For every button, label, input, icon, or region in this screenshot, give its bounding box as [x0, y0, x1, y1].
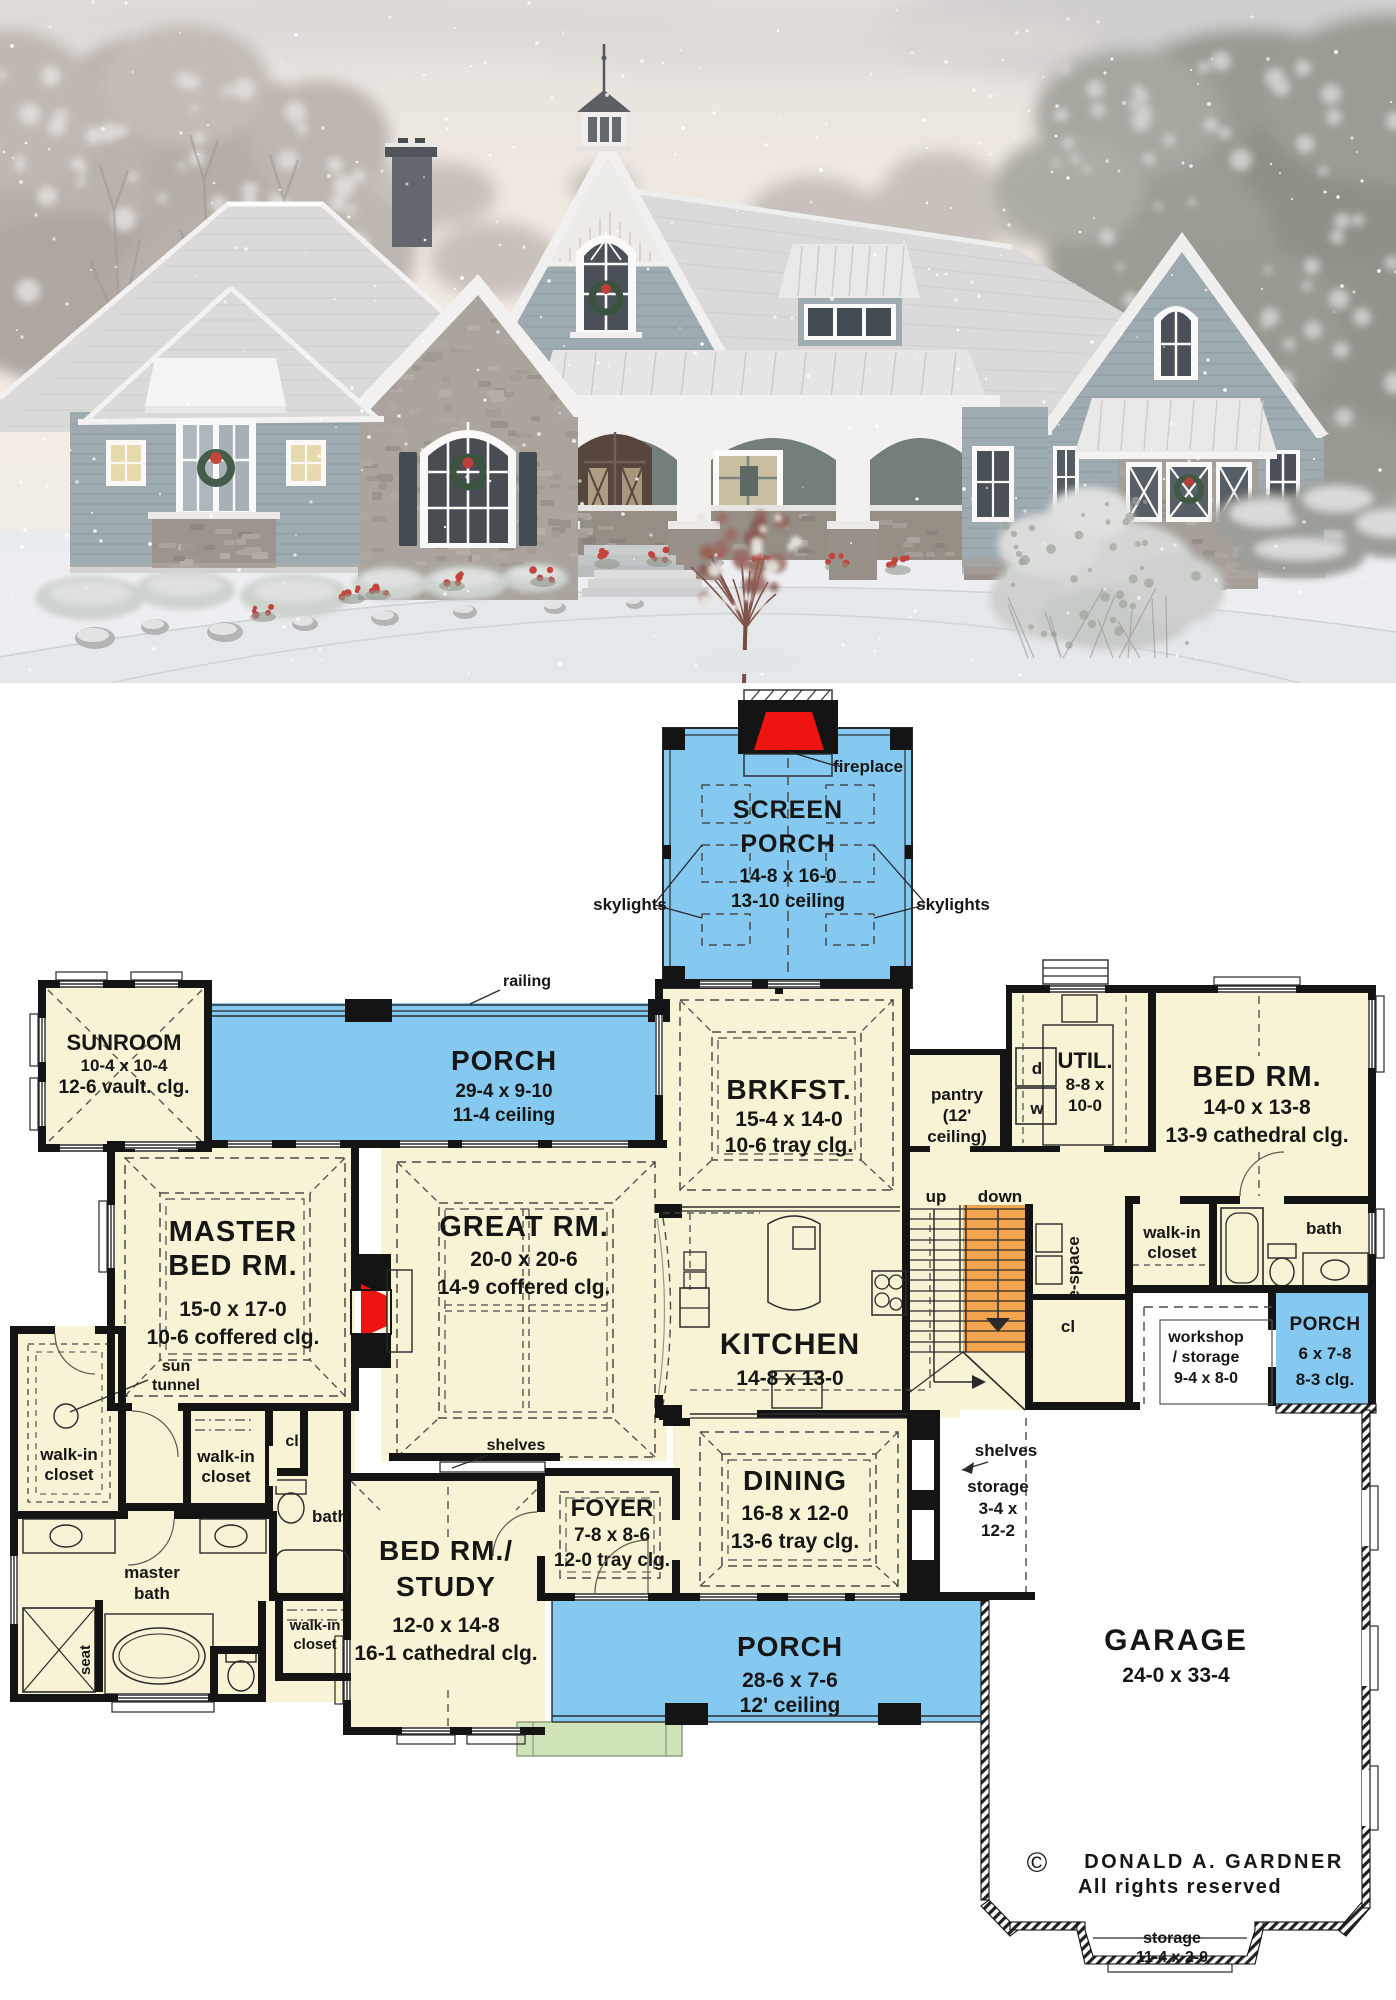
svg-text:skylights: skylights: [593, 895, 667, 914]
svg-text:BED RM.: BED RM.: [168, 1250, 297, 1282]
svg-text:workshop: workshop: [1167, 1329, 1244, 1346]
svg-text:/ storage: / storage: [1173, 1349, 1240, 1366]
svg-text:ceiling): ceiling): [927, 1127, 987, 1146]
svg-text:w: w: [1029, 1099, 1044, 1118]
svg-text:12-6 vault. clg.: 12-6 vault. clg.: [59, 1077, 190, 1098]
svg-text:13-6 tray clg.: 13-6 tray clg.: [731, 1530, 859, 1553]
svg-text:master: master: [124, 1563, 180, 1582]
svg-text:20-0 x 20-6: 20-0 x 20-6: [470, 1248, 577, 1271]
svg-text:16-8 x 12-0: 16-8 x 12-0: [741, 1502, 848, 1525]
svg-text:3-4 x: 3-4 x: [979, 1499, 1018, 1518]
svg-text:10-6 coffered clg.: 10-6 coffered clg.: [147, 1326, 320, 1349]
svg-text:skylights: skylights: [916, 895, 990, 914]
svg-text:14-8 x 13-0: 14-8 x 13-0: [736, 1367, 843, 1390]
svg-text:STUDY: STUDY: [396, 1571, 496, 1602]
svg-text:bath: bath: [1306, 1219, 1342, 1238]
svg-text:DONALD A. GARDNER: DONALD A. GARDNER: [1084, 1851, 1344, 1873]
svg-text:UTIL.: UTIL.: [1058, 1048, 1113, 1073]
svg-text:walk-in: walk-in: [39, 1445, 98, 1464]
svg-text:7-8 x 8-6: 7-8 x 8-6: [574, 1525, 650, 1546]
svg-text:MASTER: MASTER: [169, 1216, 297, 1248]
svg-text:12' ceiling: 12' ceiling: [740, 1694, 841, 1717]
svg-text:sun: sun: [162, 1358, 190, 1375]
svg-text:seat: seat: [77, 1645, 94, 1675]
svg-text:14-9 coffered clg.: 14-9 coffered clg.: [438, 1276, 611, 1299]
svg-text:All rights reserved: All rights reserved: [1078, 1876, 1282, 1898]
svg-text:PORCH: PORCH: [1289, 1314, 1360, 1335]
svg-text:12-2: 12-2: [981, 1521, 1015, 1540]
svg-text:9-4 x 8-0: 9-4 x 8-0: [1174, 1370, 1238, 1387]
svg-text:(12': (12': [943, 1106, 972, 1125]
svg-text:walk-in: walk-in: [1142, 1223, 1201, 1242]
svg-text:tunnel: tunnel: [152, 1377, 200, 1394]
svg-text:down: down: [978, 1187, 1022, 1206]
svg-text:storage: storage: [967, 1477, 1028, 1496]
svg-text:14-8 x 16-0: 14-8 x 16-0: [739, 866, 836, 887]
svg-text:11-4 x 2-0: 11-4 x 2-0: [1136, 1949, 1208, 1966]
svg-text:©: ©: [1027, 1847, 1048, 1878]
svg-text:29-4 x 9-10: 29-4 x 9-10: [455, 1081, 552, 1102]
svg-text:BRKFST.: BRKFST.: [726, 1074, 851, 1105]
svg-text:DINING: DINING: [743, 1465, 847, 1496]
svg-text:14-0 x 13-8: 14-0 x 13-8: [1203, 1096, 1311, 1119]
svg-text:8-8 x: 8-8 x: [1066, 1075, 1105, 1094]
svg-text:storage: storage: [1143, 1930, 1201, 1947]
svg-text:FOYER: FOYER: [571, 1495, 654, 1522]
svg-text:28-6 x 7-6: 28-6 x 7-6: [742, 1669, 838, 1692]
svg-text:10-6 tray clg.: 10-6 tray clg.: [725, 1134, 853, 1157]
svg-text:e-space: e-space: [1064, 1236, 1083, 1299]
svg-text:bath: bath: [312, 1507, 348, 1526]
svg-text:SCREEN: SCREEN: [733, 796, 843, 824]
svg-text:KITCHEN: KITCHEN: [720, 1328, 860, 1361]
svg-text:closet: closet: [201, 1467, 250, 1486]
svg-text:cl: cl: [285, 1433, 298, 1450]
svg-text:closet: closet: [44, 1465, 93, 1484]
svg-text:railing: railing: [503, 973, 551, 990]
svg-text:bath: bath: [134, 1584, 170, 1603]
svg-text:cl: cl: [1061, 1317, 1075, 1336]
svg-text:pantry: pantry: [931, 1085, 984, 1104]
svg-text:13-9 cathedral clg.: 13-9 cathedral clg.: [1165, 1124, 1348, 1147]
svg-text:GREAT RM.: GREAT RM.: [439, 1211, 609, 1243]
svg-text:12-0 x 14-8: 12-0 x 14-8: [392, 1614, 500, 1637]
svg-text:PORCH: PORCH: [740, 830, 835, 858]
svg-text:11-4 ceiling: 11-4 ceiling: [453, 1105, 555, 1126]
svg-text:13-10 ceiling: 13-10 ceiling: [731, 891, 845, 912]
svg-text:16-1 cathedral clg.: 16-1 cathedral clg.: [354, 1642, 537, 1665]
svg-text:closet: closet: [293, 1636, 336, 1653]
svg-text:closet: closet: [1147, 1243, 1196, 1262]
svg-text:walk-in: walk-in: [196, 1447, 255, 1466]
svg-text:10-0: 10-0: [1068, 1096, 1102, 1115]
svg-text:8-3 clg.: 8-3 clg.: [1296, 1370, 1355, 1389]
svg-text:GARAGE: GARAGE: [1104, 1624, 1248, 1657]
svg-text:PORCH: PORCH: [737, 1631, 843, 1662]
svg-text:24-0 x 33-4: 24-0 x 33-4: [1122, 1664, 1230, 1687]
svg-text:15-0 x 17-0: 15-0 x 17-0: [179, 1298, 286, 1321]
svg-text:15-4 x 14-0: 15-4 x 14-0: [735, 1108, 842, 1131]
svg-text:shelves: shelves: [487, 1437, 546, 1454]
svg-text:d: d: [1032, 1059, 1042, 1078]
svg-text:12-0 tray clg.: 12-0 tray clg.: [554, 1550, 670, 1571]
svg-text:BED RM.: BED RM.: [1192, 1061, 1321, 1093]
svg-text:fireplace: fireplace: [833, 757, 903, 776]
svg-text:10-4 x 10-4: 10-4 x 10-4: [81, 1056, 168, 1075]
svg-text:up: up: [926, 1187, 947, 1206]
svg-text:6 x 7-8: 6 x 7-8: [1299, 1344, 1352, 1363]
svg-text:SUNROOM: SUNROOM: [67, 1030, 182, 1055]
svg-text:PORCH: PORCH: [451, 1045, 557, 1076]
svg-text:shelves: shelves: [975, 1441, 1037, 1460]
